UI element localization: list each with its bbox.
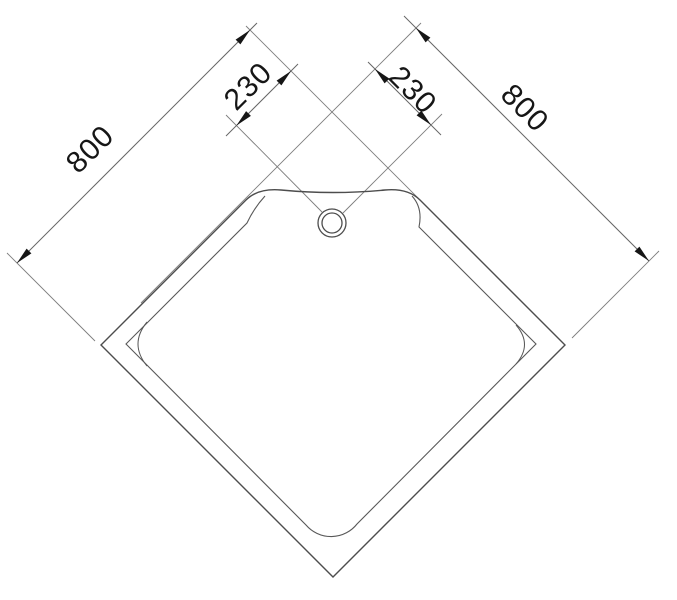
extension-line-left-corner [7, 253, 95, 341]
tray-outer-outline [101, 190, 565, 577]
extension-lines-group [7, 23, 659, 341]
drain-group [318, 209, 346, 237]
drawing-canvas: 800 230 230 800 [0, 0, 677, 600]
dimension-line-800-left [17, 23, 257, 263]
dim-label-800-left: 800 [60, 119, 121, 180]
tray-rim-line [126, 196, 536, 537]
shower-tray-technical-drawing: 800 230 230 800 [0, 0, 677, 600]
dim-label-230-left: 230 [218, 56, 279, 117]
dimension-labels-group: 800 230 230 800 [60, 56, 555, 180]
drain-inner-circle [322, 213, 342, 233]
dim-label-230-right: 230 [382, 60, 443, 121]
extension-line-right-corner [572, 251, 659, 338]
extension-line-left-230-to-drain [226, 115, 322, 212]
extension-line-right-top-long [141, 23, 421, 303]
dim-label-800-right: 800 [494, 78, 555, 139]
extension-line-right-230-to-drain [343, 114, 442, 213]
dimension-line-800-right [404, 16, 649, 261]
basin-corner-arc-left [138, 322, 147, 366]
